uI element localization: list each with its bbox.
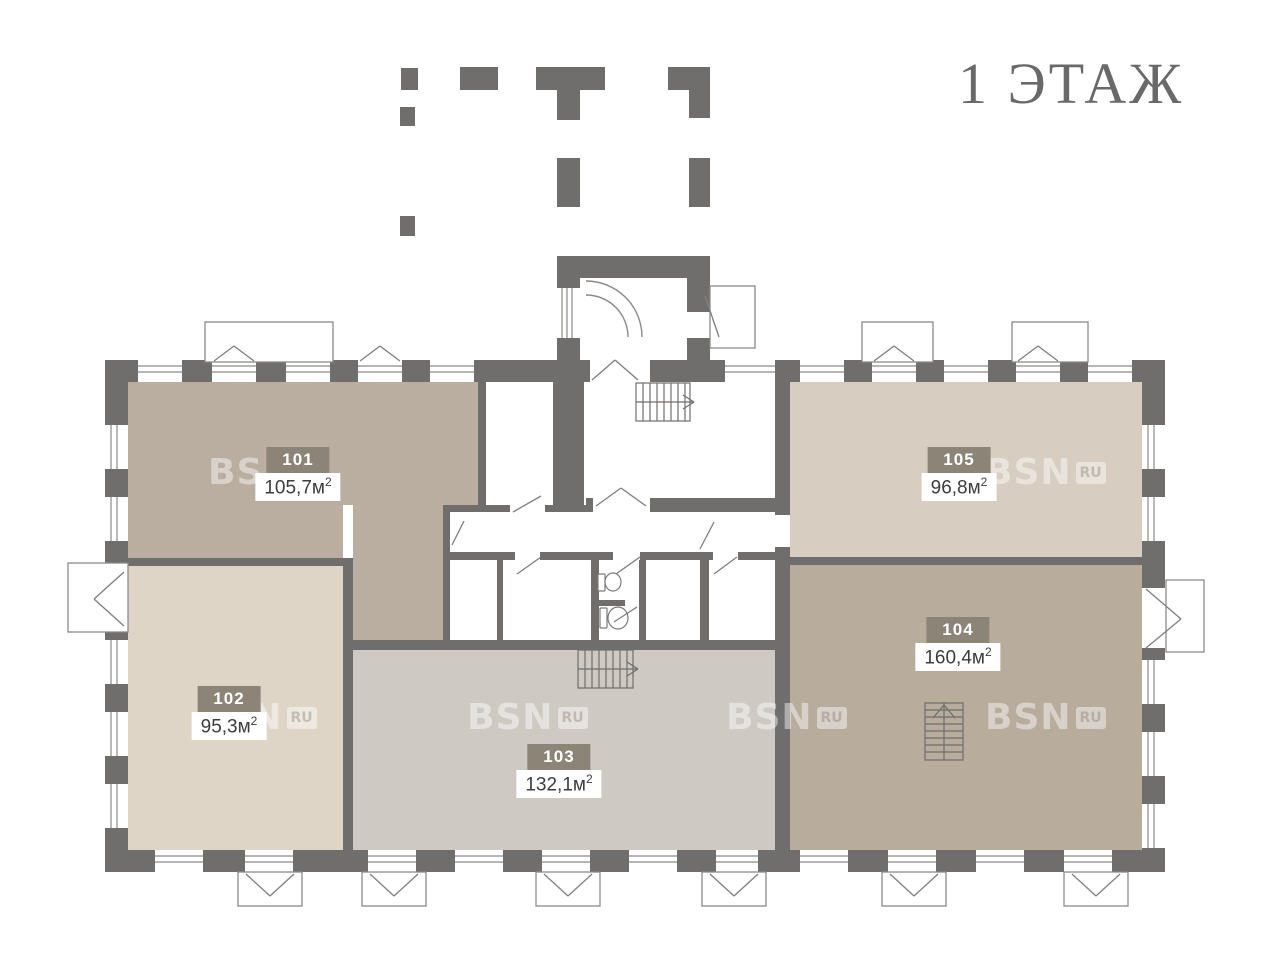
window-opening — [1016, 360, 1060, 382]
door-leaf-line — [1018, 346, 1038, 361]
dashed-wall-segment — [689, 88, 710, 118]
wall-segment — [450, 552, 515, 560]
door-leaf-line — [513, 496, 541, 512]
dashed-wall-segment — [401, 68, 418, 90]
door-leaf-line — [394, 874, 418, 896]
wall-segment — [790, 557, 1143, 565]
terrace-outline — [862, 322, 933, 362]
wall-segment — [557, 338, 580, 382]
dashed-wall-segment — [400, 216, 415, 236]
window-opening — [286, 360, 330, 382]
door-leaf-line — [894, 346, 914, 361]
wall-segment — [687, 256, 710, 312]
watermark-ru-badge: RU — [1076, 707, 1106, 729]
door-leaf-line — [1072, 874, 1096, 896]
terrace-outline — [205, 322, 333, 362]
door-leaf-line — [270, 874, 294, 896]
wall-segment — [700, 560, 709, 645]
wall-segment — [478, 382, 486, 505]
unit-104-label[interactable]: 104 160,4м2 — [915, 617, 1000, 671]
wall-segment — [687, 338, 710, 382]
window-opening — [629, 850, 677, 872]
door-leaf-line — [568, 874, 592, 896]
door-leaf-line — [517, 557, 541, 574]
door-opening — [1142, 588, 1165, 648]
watermark-text: BSN — [985, 452, 1072, 493]
watermark-ru-badge: RU — [558, 707, 588, 729]
window-opening — [888, 850, 936, 872]
unit-103-label[interactable]: 103 132,1м2 — [516, 744, 601, 798]
unit-105-label[interactable]: 105 96,8м2 — [922, 447, 997, 501]
wall-segment — [650, 498, 775, 512]
watermark-ru-badge: RU — [1076, 462, 1106, 484]
door-leaf-line — [616, 557, 640, 574]
unit-102-area-label: 95,3м2 — [192, 712, 267, 740]
wall-segment — [639, 560, 646, 645]
unit-104-number: 104 — [926, 617, 989, 643]
unit-101-number: 101 — [266, 447, 329, 473]
bottom-porch-outline — [702, 872, 766, 906]
unit-102-number: 102 — [197, 686, 260, 712]
door-leaf-line — [452, 521, 464, 545]
wall-segment — [557, 256, 580, 288]
door-leaf-line — [214, 346, 234, 361]
window-opening — [430, 360, 474, 382]
dashed-wall-segment — [668, 67, 710, 90]
window-opening — [455, 850, 503, 872]
window-opening — [1088, 360, 1132, 382]
window-opening — [138, 360, 182, 382]
window-opening — [872, 360, 916, 382]
door-leaf-line — [544, 874, 568, 896]
dashed-wall-segment — [460, 67, 498, 90]
window-opening — [1142, 804, 1165, 848]
wall-segment — [640, 552, 713, 560]
terrace-outline — [1012, 322, 1088, 362]
watermark-text: BSN — [985, 697, 1072, 738]
window-opening — [358, 360, 402, 382]
window-opening — [1142, 660, 1165, 704]
right-porch-outline — [1166, 580, 1204, 652]
door-leaf-line — [234, 346, 254, 361]
door-leaf-line — [621, 488, 646, 506]
wall-segment — [128, 558, 345, 566]
toilet-icon — [600, 607, 628, 629]
bsn-watermark: BSNRU — [985, 452, 1106, 493]
window-opening — [1142, 497, 1165, 541]
wall-segment — [343, 640, 775, 650]
floor-title: 1 ЭТАЖ — [958, 50, 1184, 117]
dashed-wall-segment — [536, 67, 605, 90]
bsn-watermark: BSNRU — [726, 697, 847, 738]
window-opening — [542, 850, 590, 872]
wall-segment — [343, 558, 353, 872]
unit-101-label[interactable]: 101 105,7м2 — [255, 447, 340, 501]
window-opening — [105, 425, 128, 469]
dashed-wall-segment — [557, 158, 580, 207]
door-leaf-line — [614, 607, 637, 622]
wall-segment — [497, 560, 503, 645]
window-opening — [1142, 732, 1165, 776]
door-leaf-line — [1038, 346, 1058, 361]
window-opening — [800, 850, 848, 872]
wall-segment — [545, 505, 586, 512]
floor-plan: 1 ЭТАЖ — [0, 0, 1280, 963]
window-opening — [155, 850, 203, 872]
watermark-ru-badge: RU — [817, 707, 847, 729]
window-opening — [105, 712, 128, 756]
room-101-area-foot[interactable] — [353, 505, 443, 645]
unit-103-area-label: 132,1м2 — [516, 770, 601, 798]
unit-105-number: 105 — [927, 447, 990, 473]
bottom-porch-outline — [536, 872, 600, 906]
wall-segment — [540, 552, 613, 560]
door-leaf-line — [914, 874, 938, 896]
stairs-icon-entrance-hall — [636, 383, 694, 421]
wall-segment — [738, 552, 775, 560]
wall-segment — [553, 382, 584, 505]
door-opening — [105, 570, 128, 628]
entrance-porch-outline — [710, 286, 755, 348]
bsn-watermark: BSNRU — [985, 697, 1106, 738]
window-opening — [944, 360, 988, 382]
door-opening — [775, 515, 790, 547]
unit-105-area-label: 96,8м2 — [922, 473, 997, 501]
window-opening — [212, 360, 256, 382]
dashed-wall-segment — [689, 158, 710, 207]
window-opening — [557, 288, 580, 338]
unit-103-number: 103 — [527, 744, 590, 770]
window-opening — [105, 784, 128, 828]
watermark-text: BSN — [467, 697, 554, 738]
dashed-wall-segment — [557, 88, 580, 120]
unit-102-label[interactable]: 102 95,3м2 — [192, 686, 267, 740]
unit-101-area-label: 105,7м2 — [255, 473, 340, 501]
window-opening — [800, 360, 844, 382]
door-leaf-line — [370, 874, 394, 896]
door-leaf-line — [874, 346, 894, 361]
entrance-door-arc — [586, 281, 642, 337]
door-leaf-line — [360, 346, 380, 361]
wall-segment — [591, 600, 625, 606]
window-opening — [105, 497, 128, 541]
door-opening — [590, 360, 650, 382]
door-leaf-line — [734, 874, 758, 896]
door-leaf-line — [596, 488, 621, 506]
bottom-porch-outline — [238, 872, 302, 906]
bottom-porch-outline — [882, 872, 946, 906]
door-leaf-line — [714, 557, 737, 574]
window-opening — [105, 640, 128, 684]
window-opening — [976, 850, 1024, 872]
toilet-icon — [598, 573, 621, 591]
door-leaf-line — [246, 874, 270, 896]
watermark-ru-badge: RU — [287, 707, 317, 729]
watermark-text: BSN — [726, 697, 813, 738]
wall-segment — [443, 505, 510, 512]
window-opening — [245, 850, 293, 872]
door-leaf-line — [710, 874, 734, 896]
wall-segment — [586, 498, 593, 512]
window-opening — [725, 360, 775, 382]
door-leaf-line — [890, 874, 914, 896]
window-opening — [1142, 425, 1165, 469]
window-opening — [368, 850, 416, 872]
window-opening — [1064, 850, 1112, 872]
wall-segment — [443, 505, 450, 645]
dashed-wall-segment — [400, 107, 415, 126]
bsn-watermark: BSNRU — [467, 697, 588, 738]
wall-segment — [775, 382, 790, 515]
bottom-porch-outline — [362, 872, 426, 906]
door-leaf-line — [380, 346, 400, 361]
door-leaf-line — [1096, 874, 1120, 896]
room-101-area-lower[interactable] — [128, 505, 343, 558]
door-leaf-line — [700, 522, 714, 549]
bottom-porch-outline — [1064, 872, 1128, 906]
unit-104-area-label: 160,4м2 — [915, 643, 1000, 671]
window-opening — [716, 850, 758, 872]
